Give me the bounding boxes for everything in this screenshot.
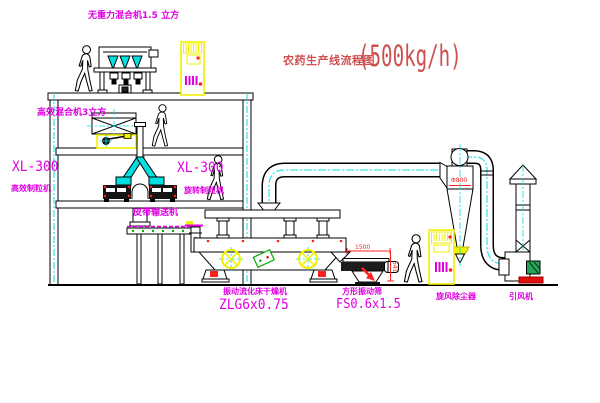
diagram-title-capacity: (500kg/h): [358, 42, 462, 71]
label-belt-conveyor: 皮带输送机: [133, 209, 178, 218]
label-high-efficiency-mixer: 高效混合机3立方: [37, 109, 106, 118]
vibrating-sieve: [341, 248, 399, 285]
person-second-floor: [152, 105, 167, 146]
pesticide-production-line-diagram: 农药生产线流程图 (500kg/h) 无重力混合机1.5 立方 高效混合机3立方…: [0, 0, 600, 403]
fan-base: [519, 277, 543, 283]
control-cabinet-right: [429, 230, 454, 284]
dryer-exhaust-manifold: [205, 210, 340, 218]
dimension-sieve-height: 541: [391, 261, 397, 272]
label-cyclone: 旋风除尘器: [436, 293, 476, 301]
dryer-exhaust-duct: [258, 163, 448, 218]
label-granulator-left-model: XL-300: [12, 160, 59, 174]
person-roof: [75, 46, 92, 91]
control-cabinet-top: [181, 42, 204, 95]
label-sieve-name: 方形振动筛: [342, 288, 382, 296]
fluid-bed-dryer: [185, 210, 350, 282]
label-granulator-left-name: 高效制粒机: [11, 185, 51, 193]
gravity-free-mixer: [94, 47, 158, 93]
label-dryer-model: ZLG6x0.75: [219, 298, 289, 312]
induced-draft-fan: [499, 252, 543, 283]
label-granulator-center-name: 旋转制粒机: [184, 187, 224, 195]
y-distribution-pipe: [116, 157, 164, 185]
label-fan: 引风机: [509, 293, 533, 301]
person-ground: [404, 235, 421, 282]
dimension-sieve-length: 1500: [355, 245, 370, 251]
belt-conveyor: [127, 227, 197, 285]
dimension-cyclone-diameter: Φ800: [451, 178, 467, 184]
label-sieve-model: FS0.6x1.5: [336, 298, 401, 311]
label-dryer-name: 振动流化床干燥机: [223, 288, 287, 296]
rotary-granulators: [103, 184, 177, 202]
label-gravity-free-mixer: 无重力混合机1.5 立方: [88, 12, 179, 21]
label-granulator-center-model: XL-300: [177, 161, 224, 175]
